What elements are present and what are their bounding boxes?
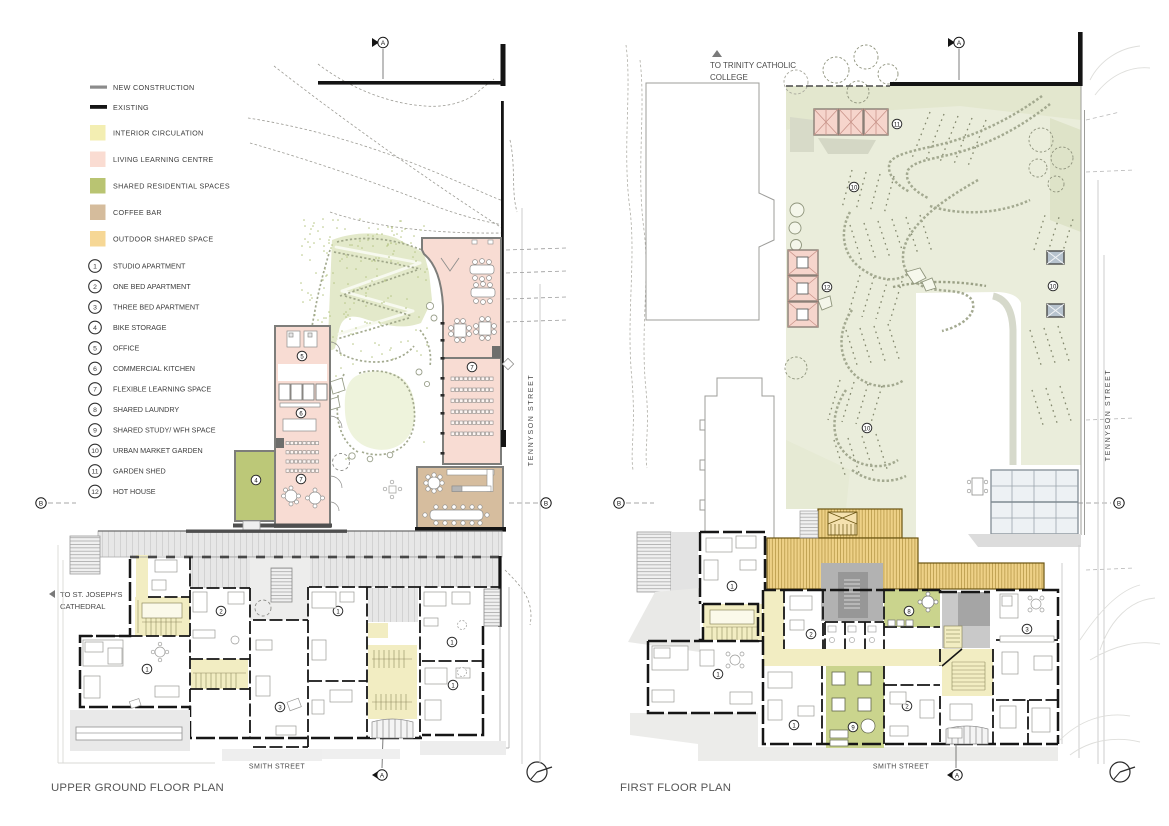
svg-text:5: 5: [93, 346, 97, 353]
svg-text:12: 12: [824, 286, 831, 292]
svg-text:LIVING LEARNING CENTRE: LIVING LEARNING CENTRE: [113, 155, 213, 164]
svg-text:TO TRINITY CATHOLIC: TO TRINITY CATHOLIC: [710, 61, 796, 70]
svg-text:B: B: [544, 501, 548, 508]
svg-text:10: 10: [851, 186, 858, 192]
svg-text:FIRST FLOOR PLAN: FIRST FLOOR PLAN: [620, 782, 731, 794]
svg-text:TO ST. JOSEPH'S: TO ST. JOSEPH'S: [60, 590, 123, 599]
svg-text:10: 10: [91, 448, 99, 455]
svg-text:2: 2: [93, 284, 97, 291]
svg-text:1: 1: [93, 264, 97, 271]
svg-text:OFFICE: OFFICE: [113, 344, 140, 353]
svg-text:NEW CONSTRUCTION: NEW CONSTRUCTION: [113, 83, 194, 92]
svg-text:HOT HOUSE: HOT HOUSE: [113, 487, 156, 496]
svg-text:SMITH STREET: SMITH STREET: [249, 764, 305, 771]
svg-text:8: 8: [93, 407, 97, 414]
svg-text:B: B: [39, 501, 43, 508]
svg-text:11: 11: [894, 123, 901, 129]
svg-text:10: 10: [1050, 285, 1057, 291]
svg-text:7: 7: [93, 387, 97, 394]
svg-text:3: 3: [93, 305, 97, 312]
svg-text:A: A: [381, 40, 386, 47]
svg-text:FLEXIBLE LEARNING SPACE: FLEXIBLE LEARNING SPACE: [113, 385, 211, 394]
svg-text:INTERIOR CIRCULATION: INTERIOR CIRCULATION: [113, 129, 204, 138]
svg-text:BIKE STORAGE: BIKE STORAGE: [113, 323, 167, 332]
svg-text:STUDIO APARTMENT: STUDIO APARTMENT: [113, 262, 186, 271]
svg-text:ONE BED APARTMENT: ONE BED APARTMENT: [113, 282, 191, 291]
svg-text:THREE BED APARTMENT: THREE BED APARTMENT: [113, 303, 200, 312]
svg-text:URBAN MARKET GARDEN: URBAN MARKET GARDEN: [113, 446, 203, 455]
svg-text:OUTDOOR SHARED SPACE: OUTDOOR SHARED SPACE: [113, 235, 214, 244]
svg-text:COMMERCIAL KITCHEN: COMMERCIAL KITCHEN: [113, 364, 195, 373]
svg-text:SHARED STUDY/ WFH SPACE: SHARED STUDY/ WFH SPACE: [113, 426, 216, 435]
svg-text:EXISTING: EXISTING: [113, 103, 149, 112]
svg-text:11: 11: [91, 469, 98, 476]
svg-text:B: B: [1117, 501, 1121, 508]
svg-text:10: 10: [864, 427, 871, 433]
svg-text:SHARED LAUNDRY: SHARED LAUNDRY: [113, 405, 179, 414]
svg-text:UPPER GROUND FLOOR PLAN: UPPER GROUND FLOOR PLAN: [51, 782, 224, 794]
svg-text:TENNYSON STREET: TENNYSON STREET: [1105, 369, 1112, 461]
svg-text:A: A: [955, 773, 960, 780]
svg-text:SHARED RESIDENTIAL SPACES: SHARED RESIDENTIAL SPACES: [113, 182, 230, 191]
svg-text:A: A: [380, 773, 385, 780]
svg-text:SMITH STREET: SMITH STREET: [873, 764, 929, 771]
svg-text:4: 4: [93, 325, 97, 332]
svg-text:B: B: [617, 501, 621, 508]
svg-text:COFFEE BAR: COFFEE BAR: [113, 208, 162, 217]
svg-text:9: 9: [93, 428, 97, 435]
svg-text:COLLEGE: COLLEGE: [710, 73, 748, 82]
svg-text:CATHEDRAL: CATHEDRAL: [60, 602, 105, 611]
svg-text:TENNYSON STREET: TENNYSON STREET: [528, 374, 535, 466]
svg-text:12: 12: [91, 489, 99, 496]
svg-text:GARDEN SHED: GARDEN SHED: [113, 467, 166, 476]
svg-text:6: 6: [93, 366, 97, 373]
svg-text:A: A: [957, 40, 962, 47]
